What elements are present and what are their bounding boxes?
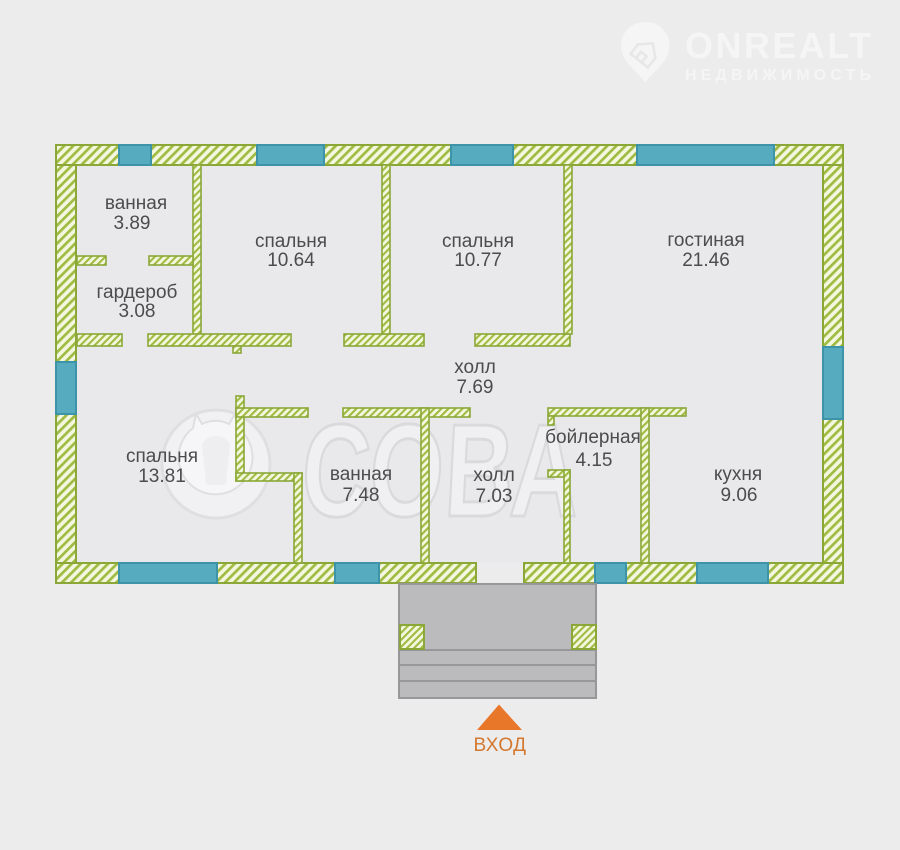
svg-text:7.03: 7.03 <box>476 486 513 507</box>
svg-text:бойлерная: бойлерная <box>545 427 641 448</box>
svg-text:13.81: 13.81 <box>138 466 186 487</box>
svg-text:спальня: спальня <box>442 231 514 252</box>
svg-text:9.06: 9.06 <box>721 485 758 506</box>
svg-text:7.69: 7.69 <box>457 377 494 398</box>
svg-text:ONREALT: ONREALT <box>685 25 873 66</box>
svg-text:7.48: 7.48 <box>343 485 380 506</box>
svg-text:НЕДВИЖИМОСТЬ: НЕДВИЖИМОСТЬ <box>685 67 875 84</box>
svg-text:гостиная: гостиная <box>667 230 744 251</box>
svg-text:кухня: кухня <box>714 464 762 485</box>
svg-text:гардероб: гардероб <box>97 282 178 303</box>
svg-text:спальня: спальня <box>126 446 198 467</box>
svg-text:ванная: ванная <box>105 193 167 214</box>
svg-text:21.46: 21.46 <box>682 250 730 271</box>
svg-text:10.64: 10.64 <box>267 250 315 271</box>
svg-text:3.89: 3.89 <box>114 213 151 234</box>
svg-text:спальня: спальня <box>255 231 327 252</box>
svg-text:ванная: ванная <box>330 464 392 485</box>
svg-text:10.77: 10.77 <box>454 250 502 271</box>
svg-text:3.08: 3.08 <box>119 301 156 322</box>
svg-text:4.15: 4.15 <box>576 450 613 471</box>
svg-text:холл: холл <box>454 357 496 378</box>
svg-text:ВХОД: ВХОД <box>473 735 526 756</box>
svg-text:холл: холл <box>473 465 515 486</box>
